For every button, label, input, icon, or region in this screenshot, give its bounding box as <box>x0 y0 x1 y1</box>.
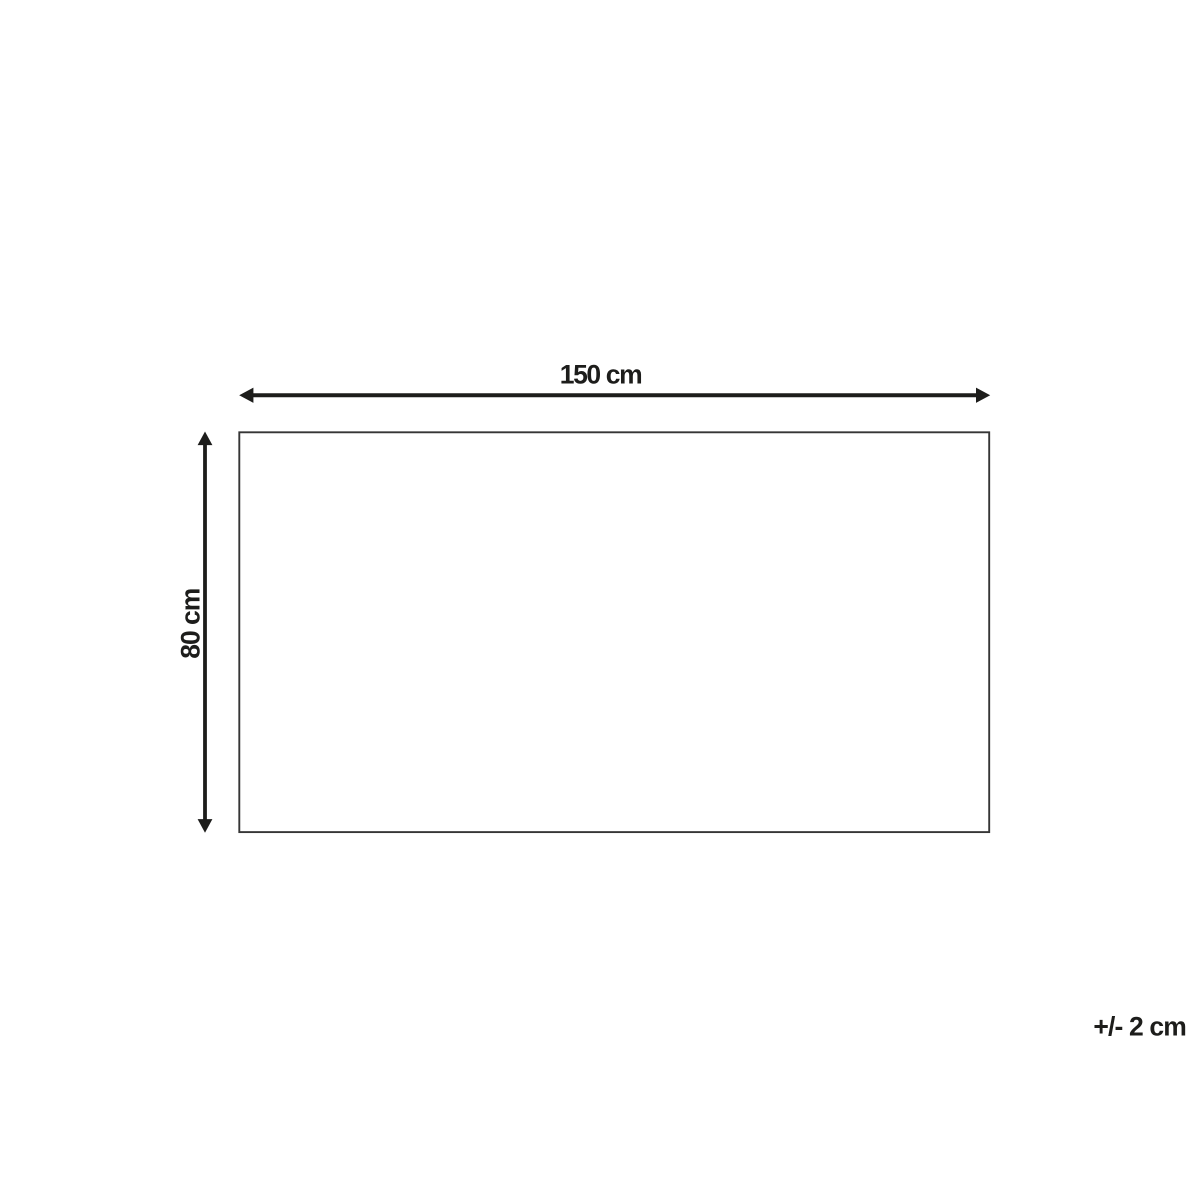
svg-text:150 cm: 150 cm <box>560 359 641 389</box>
svg-text:+/- 2 cm: +/- 2 cm <box>1093 1012 1186 1042</box>
svg-text:80 cm: 80 cm <box>176 589 206 659</box>
